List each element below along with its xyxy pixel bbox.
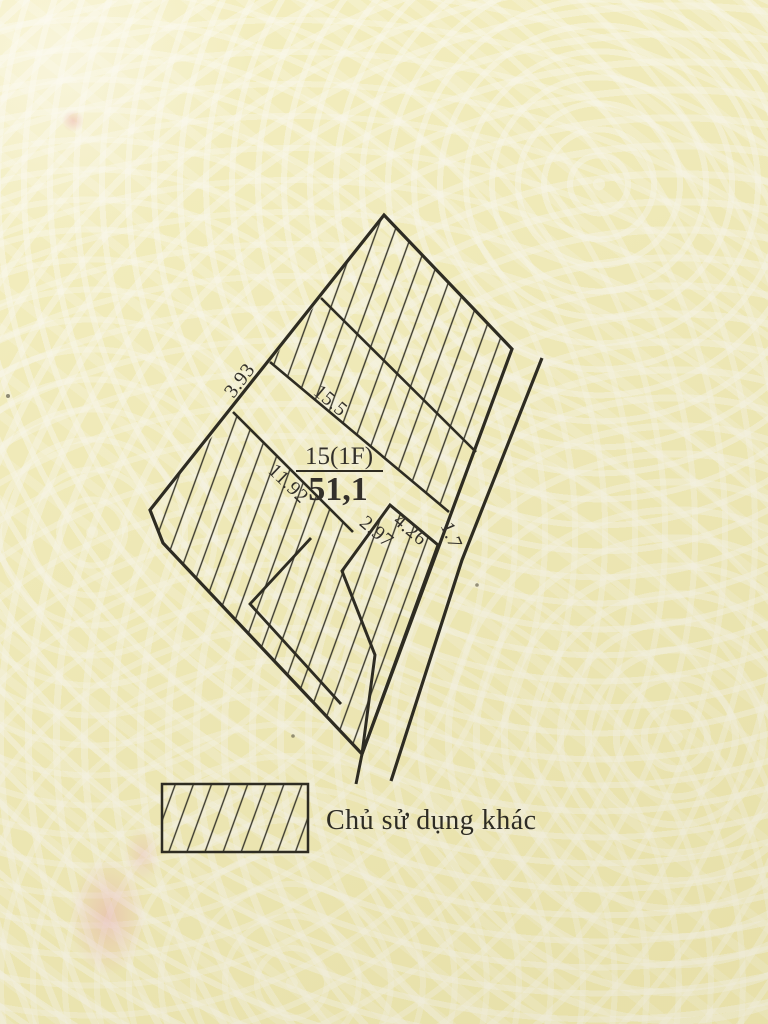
parcel-number: 15(1F) — [305, 443, 373, 470]
parcel-diagram-canvas: 15(1F) 51,1 3.93 15.5 11.92 2.97 4.26 1.… — [0, 0, 768, 1024]
legend-label: Chủ sử dụng khác — [326, 805, 537, 836]
parcel-diagram: 15(1F) 51,1 3.93 15.5 11.92 2.97 4.26 1.… — [6, 215, 542, 784]
parcel-area: 51,1 — [308, 471, 368, 508]
paper-speck — [475, 583, 479, 587]
paper-speck — [291, 734, 295, 738]
boundary-overshoot-stub — [356, 754, 362, 784]
paper-speck — [6, 394, 10, 398]
cadastral-sketch-photo: 15(1F) 51,1 3.93 15.5 11.92 2.97 4.26 1.… — [0, 0, 768, 1024]
legend-hatched-swatch — [162, 784, 308, 852]
legend: Chủ sử dụng khác — [162, 784, 537, 852]
